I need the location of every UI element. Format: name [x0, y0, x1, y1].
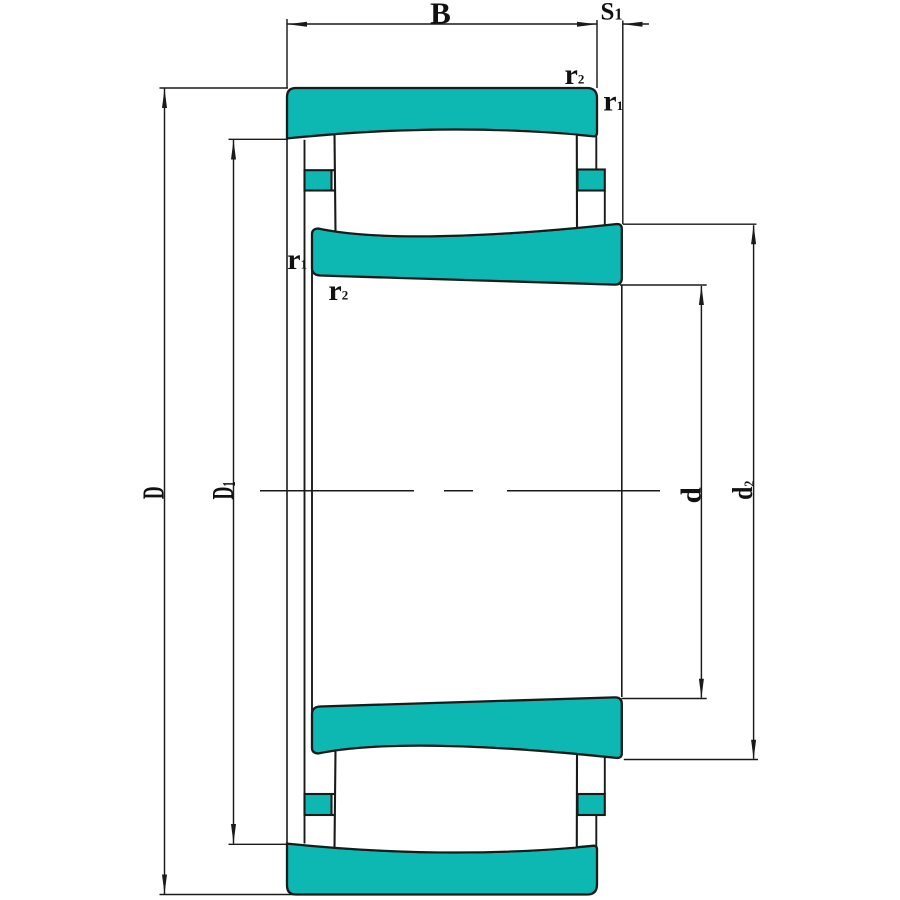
- svg-text:d: d: [675, 487, 707, 503]
- svg-text:B: B: [430, 0, 451, 31]
- svg-text:S1: S1: [601, 0, 623, 26]
- svg-text:D: D: [137, 486, 170, 499]
